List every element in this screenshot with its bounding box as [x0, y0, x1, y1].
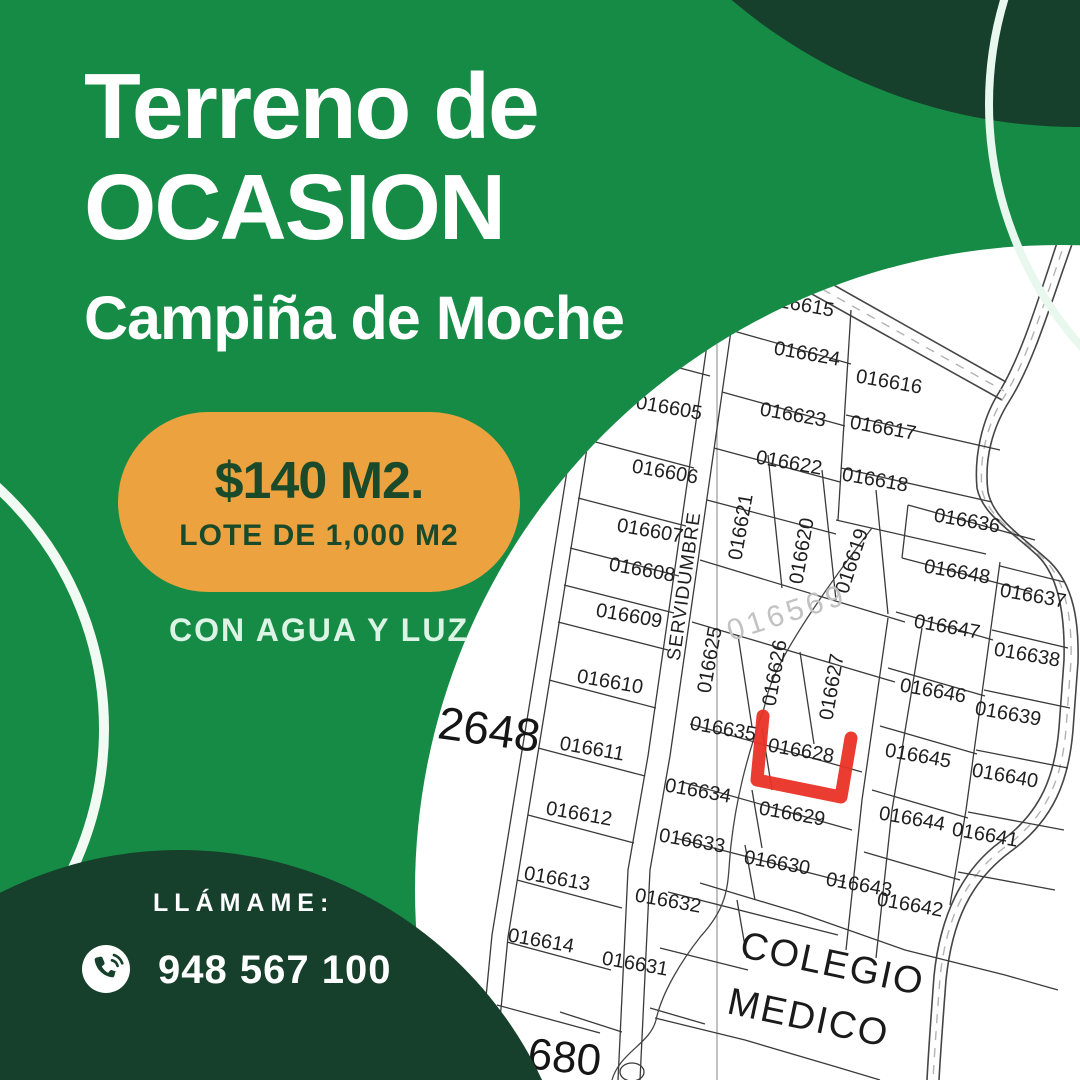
phone-icon — [82, 945, 130, 993]
price-text: $140 M2. — [215, 451, 424, 511]
title-line-1: Terreno de — [84, 56, 624, 157]
title-line-2: OCASION — [84, 157, 624, 258]
headline-block: Terreno de OCASION Campiña de Moche — [84, 56, 624, 353]
features-text: CON AGUA Y LUZ — [118, 612, 520, 649]
phone-number: 948 567 100 — [158, 948, 391, 993]
lot-size-text: LOTE DE 1,000 M2 — [179, 519, 458, 553]
subtitle: Campiña de Moche — [84, 283, 624, 353]
call-to-action-label: LLÁMAME: — [153, 889, 334, 918]
flyer-canvas: 0166150166240166160166230166170166220166… — [0, 0, 1080, 1080]
price-badge: $140 M2. LOTE DE 1,000 M2 — [118, 412, 520, 592]
